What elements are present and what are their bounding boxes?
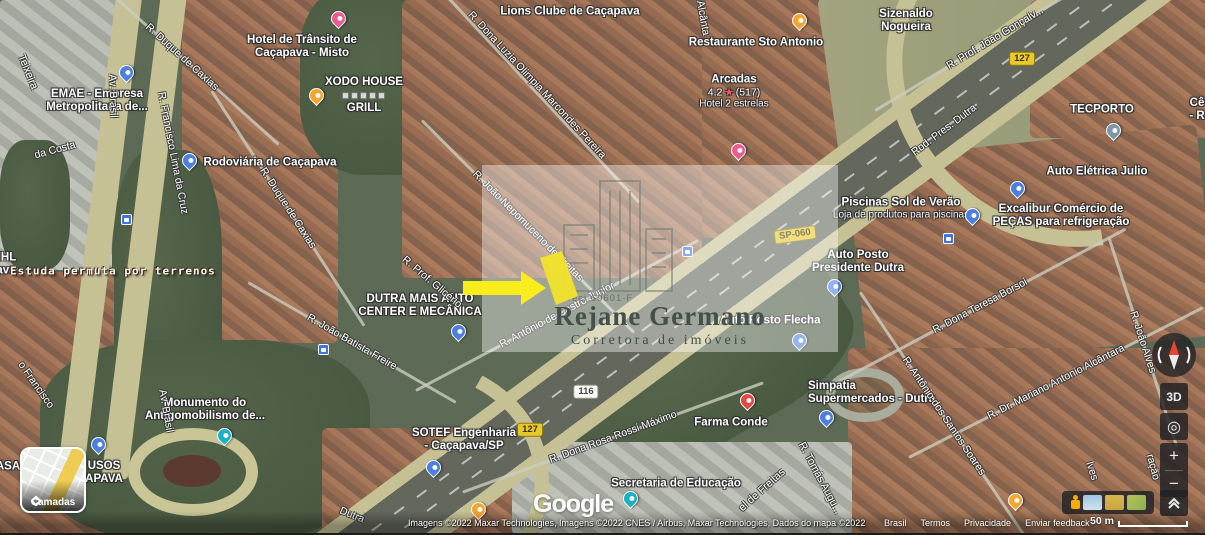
layers-label: Camadas <box>22 497 84 508</box>
realtor-watermark: Creci 69601-F Rejane Germano Corretora d… <box>482 165 838 352</box>
roundabout <box>128 428 258 516</box>
bus-stop-icon[interactable] <box>318 344 329 355</box>
realtor-name: Rejane Germano <box>482 301 838 332</box>
poi-label[interactable]: Hotel de Trânsito deCaçapava - Misto <box>247 34 357 60</box>
3d-view-button[interactable]: 3D <box>1160 383 1188 410</box>
poi-label[interactable]: Farma Conde <box>694 416 768 429</box>
chevron-up-icon <box>1166 496 1182 510</box>
pegman-icon[interactable] <box>1071 495 1080 510</box>
poi-label[interactable]: Restaurante Sto Antonio <box>689 36 823 49</box>
poi-label[interactable]: TECPORTO <box>1070 103 1134 116</box>
imagery-thumbnail[interactable] <box>1105 495 1124 510</box>
map-attribution: Imagens ©2022 Maxar Technologies, Imagen… <box>408 518 865 528</box>
my-location-button[interactable]: ◎ <box>1160 413 1188 440</box>
bus-stop-icon[interactable] <box>121 214 132 225</box>
footer-link-termos[interactable]: Termos <box>921 518 951 528</box>
poi-label[interactable]: USOSAPAVA <box>85 460 123 486</box>
poi-label[interactable]: SOTEF Engenharia- Caçapava/SP <box>412 427 516 453</box>
realtor-tagline: Corretora de imóveis <box>482 333 838 349</box>
scale-control: 50 m <box>1090 515 1188 527</box>
poi-label[interactable]: Excalibur Comércio dePEÇAS para refriger… <box>993 203 1130 229</box>
building-logo-icon <box>552 167 682 295</box>
compass-icon <box>1152 333 1196 377</box>
compass-control[interactable] <box>1152 333 1196 377</box>
scale-label: 50 m <box>1090 515 1114 527</box>
google-logo: Google <box>533 490 613 519</box>
poi-label[interactable]: Auto Elétrica Julio <box>1047 165 1148 178</box>
footer-link-enviar-feedback[interactable]: Enviar feedback <box>1025 518 1090 528</box>
poi-label[interactable]: DUTRA MAIS AUTOCENTER E MECÂNICA <box>358 293 481 319</box>
street-name-label: Av. Brasil <box>106 74 120 118</box>
road-shield: 127 <box>1009 52 1035 66</box>
footer-link-brasil[interactable]: Brasil <box>884 518 907 528</box>
poi-label[interactable]: Arcadas4.2★(517)Hotel 2 estrelas <box>699 74 768 111</box>
road-shield: 116 <box>573 385 598 399</box>
poi-label[interactable]: IHL <box>0 251 16 264</box>
poi-label[interactable]: XODO HOUSEGRILL <box>325 76 403 116</box>
imagery-thumbnail[interactable] <box>1083 495 1102 510</box>
poi-label[interactable]: Piscinas Sol de VerãoLoja de produtos pa… <box>833 197 969 222</box>
road-shield: 127 <box>517 423 543 437</box>
bus-stop-icon[interactable] <box>943 233 954 244</box>
poi-label[interactable]: EMAE - EmpresaMetropolitana de... <box>46 88 148 114</box>
zoom-in-button[interactable]: + <box>1160 443 1188 470</box>
map-container[interactable]: Lions Clube de CaçapavaHotel de Trânsito… <box>0 0 1205 535</box>
poi-label[interactable]: Cê- R <box>1189 97 1204 123</box>
layers-button[interactable]: Camadas <box>20 447 86 513</box>
footer-link-privacidade[interactable]: Privacidade <box>964 518 1011 528</box>
imagery-thumbnail[interactable] <box>1127 495 1146 510</box>
civic-pin[interactable] <box>448 321 469 342</box>
scale-bar <box>1118 521 1188 527</box>
poi-label[interactable]: ASA <box>0 460 20 473</box>
poi-label[interactable]: SizenaldoNogueira <box>879 8 933 34</box>
poi-label[interactable]: Lions Clube de Caçapava <box>500 5 639 18</box>
footer-links: BrasilTermosPrivacidadeEnviar feedback <box>884 518 1090 528</box>
zoom-controls: + − <box>1160 443 1188 497</box>
poi-label[interactable]: Secretaria de Educação <box>611 477 741 490</box>
poi-label[interactable]: Rodoviária de Caçapava <box>204 156 337 169</box>
poi-label[interactable]: Estuda permuta por terrenos <box>10 266 216 279</box>
